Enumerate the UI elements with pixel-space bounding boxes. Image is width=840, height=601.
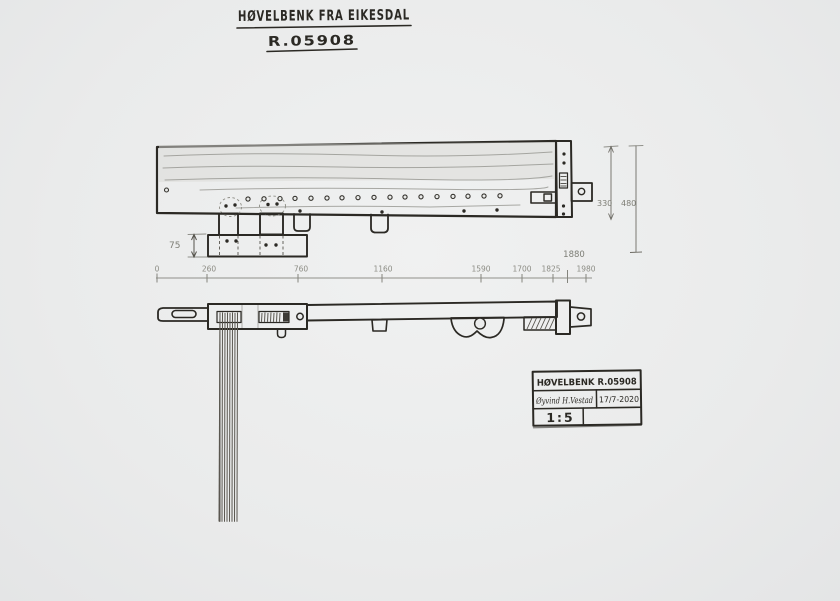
sheet-title: HØVELBENK FRA EIKESDAL R.05908 xyxy=(237,7,411,51)
title-block-signature: Øyvind H.Vestad xyxy=(535,395,593,407)
tick-label: 760 xyxy=(294,265,309,274)
tab-small-right xyxy=(371,215,388,233)
planing-stop-peg xyxy=(544,194,552,201)
tick-label: 1160 xyxy=(373,265,392,274)
side-hole xyxy=(297,313,303,319)
leg-post-right xyxy=(260,214,283,235)
lower-rail xyxy=(208,235,307,257)
side-slot xyxy=(172,311,196,318)
side-wedge xyxy=(524,317,556,330)
title-underline xyxy=(237,26,411,29)
dim-label-330: 330 xyxy=(597,199,612,208)
dim-label-1880: 1880 xyxy=(563,250,585,260)
side-tab-below-block xyxy=(278,329,286,338)
title-block-name: HØVELBENK R.05908 xyxy=(537,376,637,388)
leg-post-left xyxy=(219,214,238,236)
side-end-block xyxy=(556,301,570,335)
dimension-330: 330 xyxy=(597,146,618,220)
title-block-date: 17/7-2020 xyxy=(599,395,639,405)
rail-hidden-lines xyxy=(220,236,284,257)
drawing-number: R.05908 xyxy=(268,32,356,50)
tick-label: 260 xyxy=(202,265,217,274)
drawing-sheet: HØVELBENK FRA EIKESDAL R.05908 xyxy=(0,0,840,601)
tick-label: 0 xyxy=(155,265,160,274)
end-cap-nails xyxy=(562,152,566,215)
tenon-hole-top xyxy=(578,188,584,194)
dim-label-480: 480 xyxy=(621,199,636,208)
title-block: HØVELBENK R.05908 Øyvind H.Vestad 17/7-2… xyxy=(533,370,642,428)
tick-label: 1590 xyxy=(471,265,490,274)
peg-holes xyxy=(246,194,502,201)
side-tenon-hole xyxy=(577,313,584,320)
rail-fastener-dots xyxy=(225,239,277,246)
fastener-dots xyxy=(224,202,498,213)
side-bracket-hole xyxy=(475,318,486,329)
dimension-480: 480 xyxy=(621,146,643,253)
tick-label: 1825 xyxy=(541,265,560,274)
tab-small-left xyxy=(294,214,310,231)
drawing-title: HØVELBENK FRA EIKESDAL xyxy=(238,7,410,25)
side-small-block xyxy=(372,320,387,332)
side-view xyxy=(158,301,591,522)
side-plank xyxy=(307,302,557,321)
tick-label: 1980 xyxy=(576,265,595,274)
dim-label-75: 75 xyxy=(169,241,180,251)
scanned-paper-sheet: HØVELBENK FRA EIKESDAL R.05908 xyxy=(0,0,840,601)
tick-label: 1700 xyxy=(512,265,531,274)
tenon-top xyxy=(572,183,593,201)
title-block-scale: 1:5 xyxy=(546,410,575,425)
end-peg-hole xyxy=(165,188,169,192)
dimension-75: 75 xyxy=(169,234,207,257)
dimension-scale-line: 1880 0 260 760 1160 1590 1700 1825 1980 xyxy=(155,250,596,283)
top-view xyxy=(157,141,592,257)
